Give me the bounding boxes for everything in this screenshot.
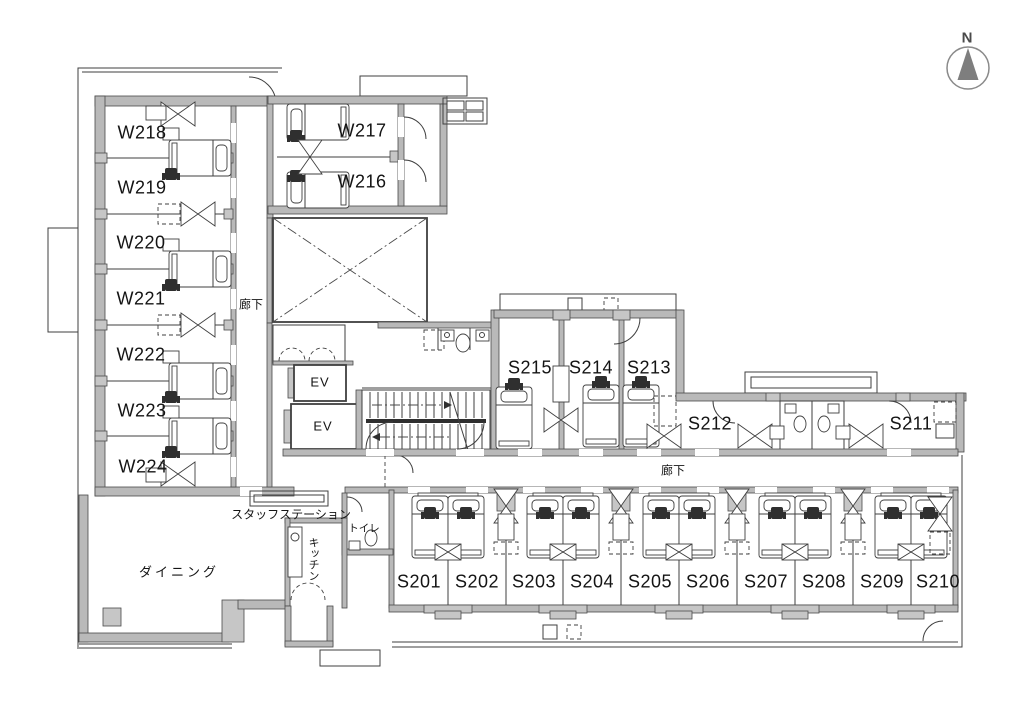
room-label-w222: W222 — [116, 345, 165, 366]
room-label-w217: W217 — [337, 121, 386, 142]
room-label-s210: S210 — [916, 572, 960, 593]
corridor-west-label: 廊下 — [239, 296, 263, 313]
room-label-s203: S203 — [512, 572, 556, 593]
room-label-w220: W220 — [116, 233, 165, 254]
room-label-s209: S209 — [860, 572, 904, 593]
room-label-w221: W221 — [116, 289, 165, 310]
room-label-s211: S211 — [890, 414, 933, 435]
toilet-label: トイレ — [348, 521, 380, 536]
washroom — [362, 310, 499, 452]
room-label-w224: W224 — [118, 457, 167, 478]
room-label-s207: S207 — [744, 572, 788, 593]
elevator-lower-label: EV — [313, 419, 332, 434]
room-label-s214: S214 — [569, 358, 613, 379]
room-label-s201: S201 — [397, 572, 441, 593]
room-label-s215: S215 — [508, 358, 552, 379]
room-label-w216: W216 — [337, 172, 386, 193]
dining-label: ダイニング — [139, 562, 219, 581]
room-label-s205: S205 — [628, 572, 672, 593]
room-label-s202: S202 — [455, 572, 499, 593]
elevator-upper-label: EV — [310, 375, 329, 390]
south-right-block — [676, 372, 966, 452]
room-label-w218: W218 — [117, 123, 166, 144]
room-label-s213: S213 — [627, 358, 671, 379]
floor-plan: W218 W219 W220 W221 W222 W223 W224 W217 … — [0, 0, 1024, 724]
void-area — [273, 218, 427, 322]
staff-station-label: スタッフステーション — [231, 506, 351, 523]
kitchen-label: キッチン — [305, 537, 321, 581]
north-label: N — [962, 30, 973, 47]
room-label-w219: W219 — [117, 178, 166, 199]
room-label-s212: S212 — [688, 414, 732, 435]
room-label-w223: W223 — [117, 401, 166, 422]
south-lower-furniture — [412, 489, 952, 560]
room-label-s204: S204 — [570, 572, 614, 593]
corridor-south-label: 廊下 — [661, 462, 685, 479]
staircase — [356, 390, 490, 487]
room-label-s206: S206 — [686, 572, 730, 593]
room-label-s208: S208 — [802, 572, 846, 593]
north-arrow-icon — [947, 47, 989, 89]
